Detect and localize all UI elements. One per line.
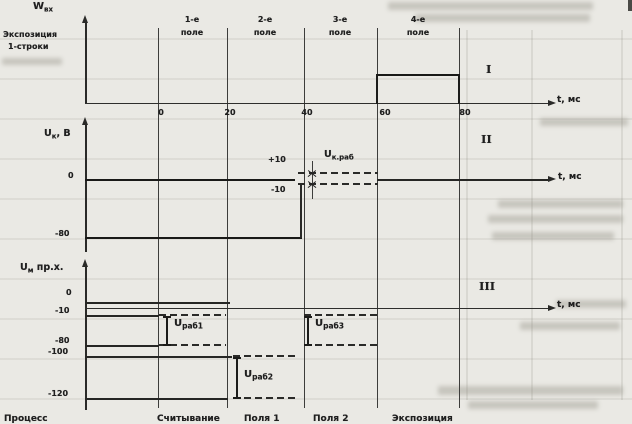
panel3-bracket-urab3 — [307, 316, 309, 346]
field-header-3: 3-е поле — [310, 13, 370, 39]
panel1-pulse-rising-edge — [376, 74, 378, 104]
panel2-band-label-sub: к.раб — [332, 154, 354, 162]
field-header-2: 2-е поле — [235, 13, 295, 39]
panel1-pulse-falling-edge — [458, 74, 460, 104]
panel2-minus10-label: -10 — [271, 186, 285, 195]
panel3-y-axis-arrow-icon — [82, 259, 88, 267]
panel2-y-axis — [85, 124, 87, 252]
panel1-t-axis — [85, 103, 548, 104]
bottom-readout-label: Считывание — [157, 415, 220, 424]
panel2-zero-label: 0 — [68, 172, 74, 181]
bleed-through-vertical-line — [466, 30, 468, 400]
panel2-transition-edge — [300, 183, 302, 238]
panel1-t-axis-arrow-icon — [548, 100, 556, 106]
panel1-ylabel-main: W — [33, 1, 44, 12]
bleed-through-smudge — [492, 232, 614, 240]
tick-40: 40 — [295, 108, 319, 117]
gridline-t0 — [158, 28, 159, 408]
panel3-m10-label: -10 — [55, 307, 69, 316]
panel2-t-axis — [377, 179, 548, 181]
tick-0: 0 — [149, 108, 173, 117]
panel3-y-axis-label: Uм пр.х. — [20, 263, 63, 275]
panel3-m80-dashed-field3 — [304, 344, 378, 346]
panel3-urab1-label: Uраб1 — [174, 318, 203, 331]
field-1-word: поле — [162, 26, 222, 39]
bleed-through-smudge — [520, 322, 620, 330]
bleed-through-table-ruling — [0, 0, 632, 424]
gridline-t20 — [227, 28, 228, 408]
panel3-bracket-urab2 — [236, 357, 238, 399]
field-1-number: 1-е — [162, 13, 222, 26]
bleed-through-smudge — [498, 200, 623, 208]
panel3-urab3-main: U — [315, 318, 323, 329]
panel3-y-axis — [85, 266, 87, 410]
bottom-field1-label: Поля 1 — [244, 415, 279, 424]
panel1-y-axis-label: Wвх — [33, 1, 53, 14]
panel3-numeral: III — [479, 279, 495, 293]
panel1-y-axis-arrow-icon — [82, 15, 88, 23]
panel2-zero-level-line — [85, 179, 295, 181]
panel3-t-axis-label: t, мс — [557, 301, 581, 311]
panel2-minus80-level-line — [85, 237, 302, 239]
panel2-band-dimension-mark-top — [307, 168, 317, 178]
panel3-ylabel-rest: пр.х. — [33, 262, 63, 273]
panel3-t-axis-arrow-icon — [548, 305, 556, 311]
bleed-through-smudge — [438, 386, 623, 395]
panel2-minus80-label: -80 — [55, 230, 69, 239]
panel3-m100-solid-line — [85, 356, 232, 358]
panel3-urab2-label: Uраб2 — [244, 369, 273, 382]
panel3-urab1-sub: раб1 — [182, 322, 203, 331]
field-header-1: 1-е поле — [162, 13, 222, 39]
scan-edge-mark — [628, 0, 632, 11]
bleed-through-smudge — [468, 401, 598, 409]
panel2-band-dimension-mark-bottom — [307, 179, 317, 189]
gridline-t40 — [304, 28, 305, 408]
panel2-y-axis-label: Uк, В — [44, 129, 71, 141]
panel1-pulse-top — [377, 74, 459, 76]
bottom-field2-label: Поля 2 — [313, 415, 348, 424]
panel1-ylabel-sub: вх — [44, 6, 53, 14]
panel3-m100-dashed-field2 — [233, 355, 299, 357]
field-2-word: поле — [235, 26, 295, 39]
scanned-timing-diagram-page: 1-е поле 2-е поле 3-е поле 4-е поле Wвх … — [0, 0, 632, 424]
panel3-m120-label: -120 — [48, 390, 68, 399]
panel1-t-axis-label: t, мс — [557, 96, 581, 106]
panel2-band-label-main: U — [324, 149, 332, 160]
field-4-number: 4-е — [388, 13, 448, 26]
field-3-word: поле — [310, 26, 370, 39]
panel2-plus10-label: +10 — [268, 156, 286, 165]
panel1-numeral: I — [486, 62, 491, 76]
panel1-exposure-label-line2: 1-строки — [8, 43, 49, 52]
panel2-ylabel-rest: , В — [56, 128, 70, 139]
field-3-number: 3-е — [310, 13, 370, 26]
panel3-m80-solid-line — [85, 345, 159, 347]
panel3-urab2-sub: раб2 — [252, 373, 273, 382]
panel3-m10-dashed-field3 — [304, 314, 378, 316]
panel2-band-label: Uк.раб — [324, 150, 354, 162]
panel3-urab3-label: Uраб3 — [315, 318, 344, 331]
tick-80: 80 — [453, 108, 477, 117]
panel3-m10-solid-line — [85, 315, 159, 317]
panel3-t-axis — [85, 308, 548, 309]
panel2-t-axis-arrow-icon — [548, 176, 556, 182]
panel2-numeral: II — [481, 132, 492, 146]
panel3-m100-label: -100 — [48, 348, 68, 357]
tick-60: 60 — [373, 108, 397, 117]
bleed-through-smudge — [488, 215, 623, 223]
panel3-m120-dashed-field2 — [233, 397, 299, 399]
bleed-through-smudge — [540, 118, 628, 126]
panel2-t-axis-label: t, мс — [558, 173, 582, 183]
bleed-through-smudge — [2, 58, 62, 65]
panel3-zero-label: 0 — [66, 289, 72, 298]
panel1-y-axis — [85, 22, 87, 104]
bottom-process-label: Процесс — [4, 415, 48, 424]
tick-20: 20 — [218, 108, 242, 117]
panel2-y-axis-arrow-icon — [82, 117, 88, 125]
panel3-ylabel-main: U — [20, 262, 28, 273]
bottom-exposure-label: Экспозиция — [392, 415, 453, 424]
panel3-urab2-main: U — [244, 369, 252, 380]
panel3-m120-solid-line — [85, 398, 228, 400]
bleed-through-smudge — [388, 2, 593, 10]
panel3-urab3-sub: раб3 — [323, 322, 344, 331]
panel3-baseline-line — [85, 302, 230, 304]
panel2-ylabel-main: U — [44, 128, 52, 139]
panel3-bracket-urab1 — [166, 316, 168, 346]
panel3-m80-label: -80 — [55, 337, 69, 346]
panel3-urab1-main: U — [174, 318, 182, 329]
panel1-exposure-label-line1: Экспозиция — [3, 31, 57, 40]
field-header-4: 4-е поле — [388, 13, 448, 39]
field-4-word: поле — [388, 26, 448, 39]
field-2-number: 2-е — [235, 13, 295, 26]
